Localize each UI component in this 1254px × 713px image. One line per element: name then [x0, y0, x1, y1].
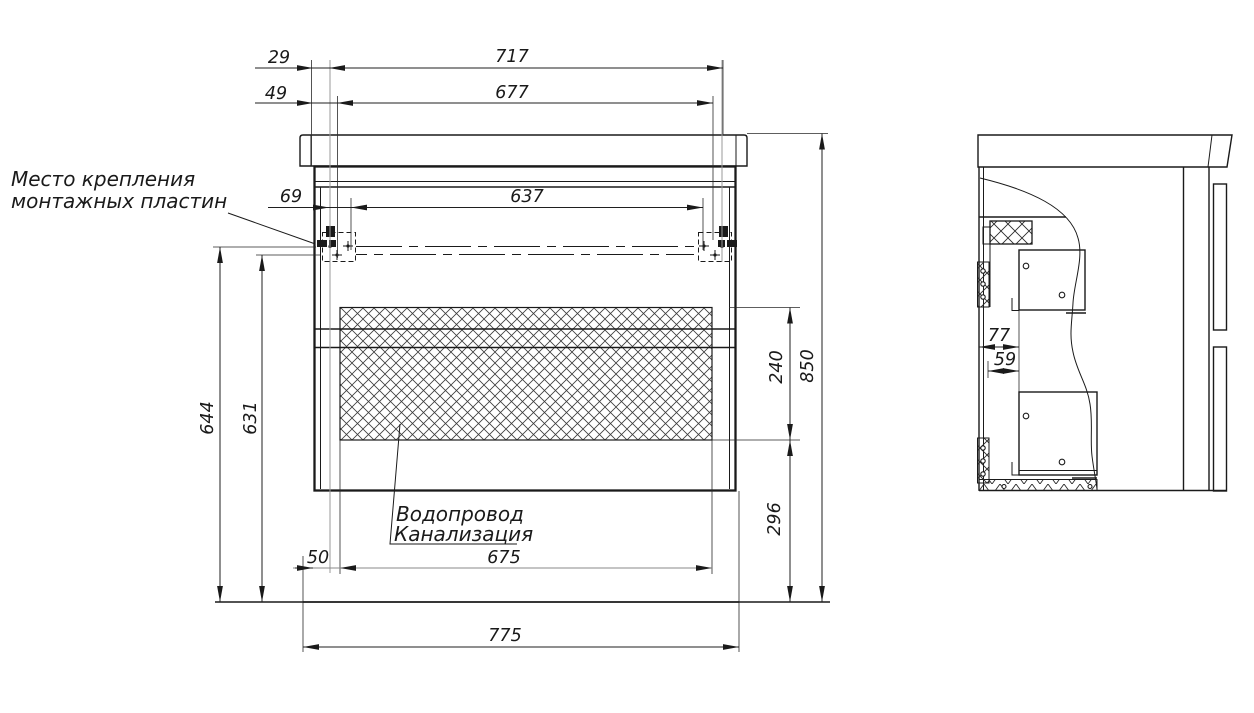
dim-text-775: 775	[488, 626, 521, 646]
front-countertop-edge-profile	[311, 135, 736, 166]
side-upper-drawer-box	[1019, 250, 1085, 310]
dim-text-677: 677	[495, 83, 528, 103]
lower-drawer-rail-step	[1012, 462, 1019, 475]
right-bracket-hook	[719, 226, 728, 237]
dim-text-240: 240	[767, 350, 787, 383]
dim-text-296: 296	[765, 502, 785, 535]
dim-text-675: 675	[487, 548, 520, 568]
fastener-hole	[981, 459, 985, 463]
upper-drawer-rail-step	[1012, 298, 1019, 311]
front-service-zone-hatch	[340, 308, 712, 441]
side-lower-drawer-front	[1214, 347, 1227, 491]
technical-drawing-canvas: 29 49 717 677 69 637 644 631 240 850 296…	[0, 0, 1254, 713]
front-mounting-brackets	[317, 226, 737, 262]
fastener-hole	[981, 282, 985, 286]
side-view-structure	[978, 135, 1233, 491]
fastener-hole	[981, 269, 985, 273]
dim-text-49: 49	[265, 84, 287, 104]
plinth-hole1	[1002, 485, 1006, 489]
side-lower-drawer-box	[1019, 392, 1097, 475]
dim-text-77: 77	[988, 326, 1010, 346]
right-bracket-dot2	[713, 253, 716, 256]
fastener-hole	[981, 295, 985, 299]
dim-text-50: 50	[307, 548, 329, 568]
drawer-screw	[1023, 413, 1029, 419]
side-upper-drawer-front	[1214, 184, 1227, 330]
right-bracket-crosshairs	[699, 241, 720, 260]
dim-text-637: 637	[510, 187, 543, 207]
drawer-screw	[1059, 459, 1065, 465]
side-mounting-plate-section	[990, 221, 1032, 244]
drawer-screw	[1023, 263, 1029, 269]
mounting-note-leader	[228, 213, 314, 244]
fastener-hole	[981, 446, 985, 450]
dim-text-717: 717	[495, 47, 528, 67]
dim-text-631: 631	[241, 401, 261, 434]
dim-text-69: 69	[280, 187, 302, 207]
dim-text-29: 29	[268, 48, 290, 68]
plinth-hole2	[1088, 485, 1092, 489]
mounting-note-line2: монтажных пластин	[11, 189, 227, 213]
side-front-panel-lines	[1184, 167, 1210, 491]
front-countertop	[300, 135, 747, 166]
drawing-svg: 29 49 717 677 69 637 644 631 240 850 296…	[0, 0, 1254, 713]
dim-text-59: 59	[994, 350, 1016, 370]
plumbing-note-line2: Канализация	[394, 522, 533, 546]
fastener-hole	[981, 472, 985, 476]
left-bracket-dot1	[346, 244, 349, 247]
dim-text-644: 644	[198, 401, 218, 434]
dim-text-850: 850	[798, 349, 818, 382]
side-countertop	[978, 135, 1232, 167]
side-countertop-nose-line	[1208, 135, 1212, 167]
drawer-screw	[1059, 292, 1065, 298]
left-bracket-dot2	[335, 253, 338, 256]
side-plinth-hatch	[979, 480, 1097, 491]
mounting-note-line1: Место крепления	[11, 167, 195, 191]
